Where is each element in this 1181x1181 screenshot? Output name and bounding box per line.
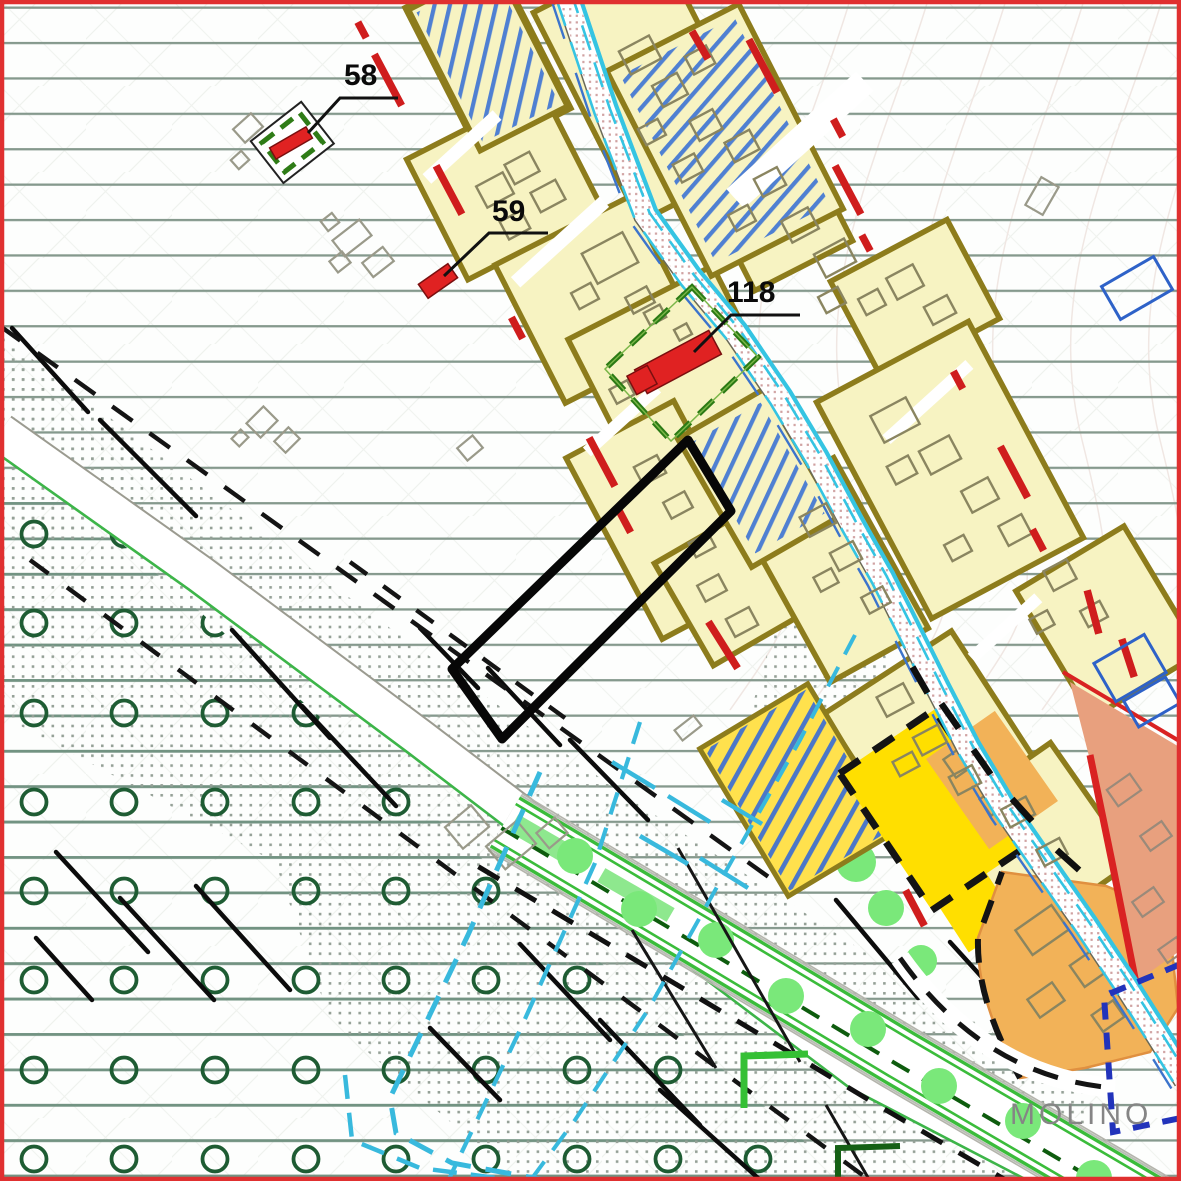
svg-text:59: 59 xyxy=(492,195,525,228)
svg-text:58: 58 xyxy=(344,59,377,92)
svg-text:MOLINO: MOLINO xyxy=(1010,1098,1152,1131)
svg-text:118: 118 xyxy=(727,276,775,309)
